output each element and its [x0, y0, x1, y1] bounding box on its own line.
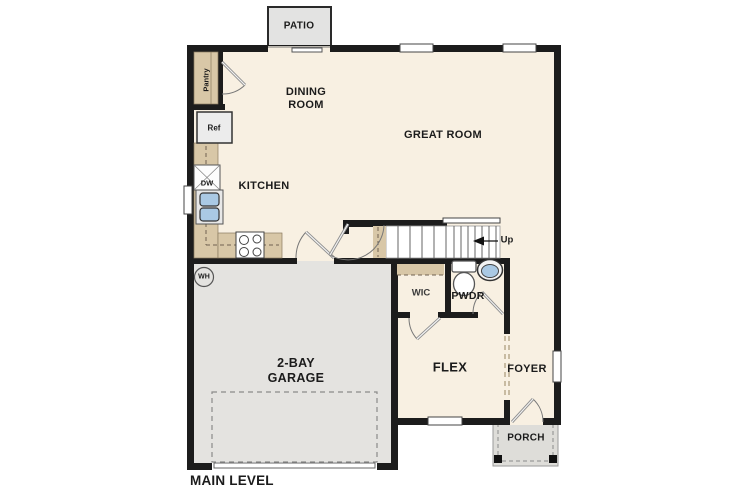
window: [428, 417, 462, 425]
fixture-label-pantry: Pantry: [202, 68, 211, 91]
stairs-up-label: Up: [501, 235, 514, 246]
porch-post: [549, 455, 557, 463]
window: [400, 44, 433, 52]
fixture-label-wh: WH: [198, 274, 210, 281]
floor-plan-drawing: [0, 0, 750, 500]
wic-shelf: [397, 264, 444, 275]
room-label-porch: PORCH: [507, 433, 545, 444]
patio-slider-door: [292, 48, 322, 52]
room-label-kitchen: KITCHEN: [239, 180, 290, 192]
room-label-great-room: GREAT ROOM: [404, 129, 482, 141]
room-label-flex: FLEX: [433, 360, 467, 375]
fixture-label-ref: Ref: [208, 124, 221, 133]
room-label-foyer: FOYER: [507, 363, 546, 375]
window: [184, 186, 192, 214]
fixture-label-dw: DW: [201, 179, 214, 188]
room-label-pwdr: PWDR: [451, 290, 484, 302]
stove: [236, 232, 264, 258]
room-label-dining-room: DINING ROOM: [273, 86, 339, 112]
porch-slab: [493, 421, 558, 466]
stair-railing: [443, 218, 500, 223]
powder-sink: [478, 260, 503, 281]
room-label-wic: WIC: [412, 288, 430, 299]
kitchen-sink: [196, 190, 223, 224]
plan-title: MAIN LEVEL: [190, 473, 274, 488]
room-label-patio: PATIO: [284, 21, 315, 32]
window: [503, 44, 536, 52]
floor-plan: PATIO DINING ROOM GREAT ROOM KITCHEN 2-B…: [0, 0, 750, 500]
porch-post: [494, 455, 502, 463]
window: [553, 351, 561, 382]
room-label-garage: 2-BAY GARAGE: [251, 356, 341, 386]
garage-door: [214, 463, 375, 468]
